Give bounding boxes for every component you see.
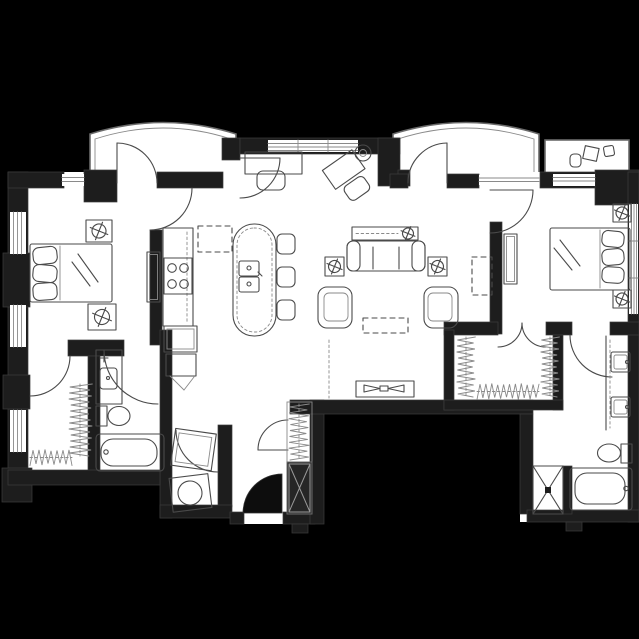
- wall-bottom-left: [8, 470, 160, 485]
- wall-top-left: [8, 172, 64, 188]
- wall-laundry-east: [218, 425, 232, 507]
- wall-entry-left: [230, 512, 244, 524]
- floor-plan-canvas: [0, 0, 639, 639]
- wall-west-block-a: [3, 253, 30, 307]
- wall-laundry-bottom: [160, 505, 232, 518]
- wall-bay2-right: [447, 174, 479, 188]
- shower-drain: [545, 487, 551, 493]
- wall-bay1-connector: [222, 138, 240, 160]
- window-top-left: [62, 174, 84, 186]
- wall-mcloset-west: [444, 330, 454, 410]
- wall-shower-east: [563, 466, 572, 514]
- wall-bay2-left: [390, 174, 408, 188]
- window-west-1: [10, 212, 26, 254]
- wall-mcloset-south: [444, 400, 563, 410]
- wall-west-block-b: [3, 375, 30, 409]
- wall-south-c: [610, 322, 639, 335]
- wall-notch-right: [520, 414, 533, 514]
- wall-mbath-nub: [566, 522, 582, 531]
- window-top-right: [553, 174, 595, 186]
- wall-closet1-bath-divider: [88, 356, 100, 478]
- window-west-2: [10, 305, 26, 347]
- wall-mbath-bottom: [527, 510, 639, 522]
- floor-plan-svg: [0, 0, 639, 639]
- wall-top-piece: [157, 172, 223, 188]
- window-living-north: [479, 175, 539, 185]
- terrace-floor: [545, 140, 629, 174]
- window-west-3: [10, 410, 26, 452]
- wall-entry-nub: [292, 524, 308, 533]
- wall-south-b: [546, 322, 572, 335]
- wall-top-step-block: [84, 170, 117, 202]
